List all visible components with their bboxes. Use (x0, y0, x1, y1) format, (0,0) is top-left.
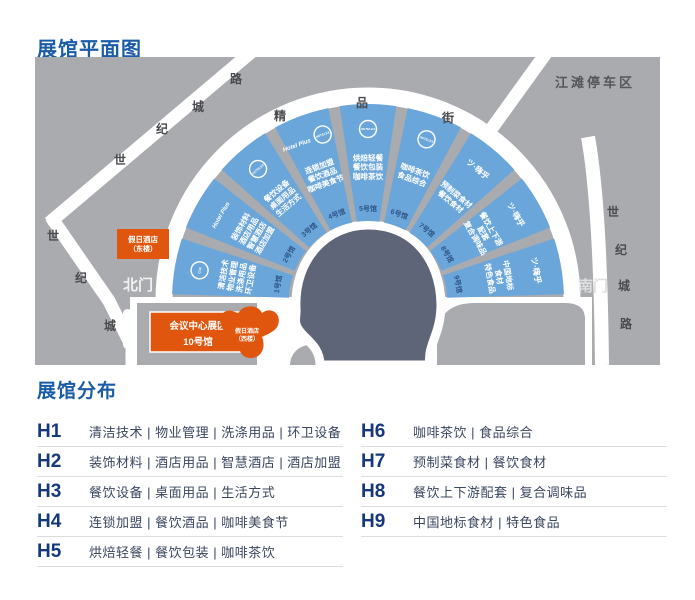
road-label-char: 世 (47, 228, 59, 243)
legend-section: 展馆分布 H1 清洁技术 | 物业管理 | 洗涤用品 | 环卫设备 H2 装饰材… (37, 376, 667, 567)
hotel-east-box (117, 229, 169, 259)
legend-row-h7: H7 预制菜食材 | 餐饮食材 (361, 447, 667, 477)
hotel-east-label: 假日酒店 (128, 234, 158, 244)
southeast-building (437, 303, 585, 365)
hall-logo-text: HOTELEX (361, 127, 377, 131)
hotel-west-sublabel: （西楼） (235, 335, 259, 343)
road-label-char: 纪 (615, 242, 627, 257)
road-label-char: 城 (104, 318, 116, 333)
road-label-char: 城 (192, 99, 204, 114)
hotel-east-sublabel: （东楼） (129, 244, 157, 253)
hall-number: 5号馆 (359, 204, 377, 213)
central-atrium (295, 225, 441, 365)
conference-hall-number: 10号馆 (183, 336, 213, 348)
road-label-char: 世 (114, 152, 126, 167)
conference-hall-label: 会议中心展区 (169, 320, 227, 332)
legend-row-h5: H5 烘焙轻餐 | 餐饮包装 | 咖啡茶饮 (37, 537, 343, 567)
street-label-char: 品 (356, 96, 368, 110)
road-label-char: 路 (230, 71, 243, 86)
hall-categories: 连锁加盟 | 餐饮酒品 | 咖啡美食节 (89, 512, 289, 531)
floor-plan-map: CCE清洁技术物业管理洗涤用品环卫设备1号馆Hotel Plus装饰材料酒店用品… (35, 57, 660, 365)
hall-id: H7 (361, 451, 413, 473)
road-label-char: 路 (620, 316, 633, 331)
road-label-char: 纪 (75, 270, 87, 285)
road-label-char: 世 (607, 204, 619, 219)
legend-row-h8: H8 餐饮上下游配套 | 复合调味品 (361, 477, 667, 507)
parking-area-label: 江滩停车区 (555, 75, 635, 90)
hall-categories: 餐饮设备 | 桌面用品 | 生活方式 (89, 482, 275, 501)
legend-right-column: H6 咖啡茶饮 | 食品综合 H7 预制菜食材 | 餐饮食材 H8 餐饮上下游配… (361, 417, 667, 567)
hall-categories: 装饰材料 | 酒店用品 | 智慧酒店 | 酒店加盟 (89, 452, 341, 471)
hall-id: H3 (37, 481, 89, 503)
legend-row-h6: H6 咖啡茶饮 | 食品综合 (361, 417, 667, 447)
hall-categories: 中国地标食材 | 特色食品 (413, 512, 560, 531)
hotel-east: 假日酒店 （东楼） (117, 229, 169, 259)
hall-id: H9 (361, 511, 413, 533)
hall-id: H6 (361, 421, 413, 443)
street-label-char: 精 (274, 108, 286, 123)
hall-id: H8 (361, 481, 413, 503)
legend-title: 展馆分布 (37, 376, 667, 403)
legend-row-h4: H4 连锁加盟 | 餐饮酒品 | 咖啡美食节 (37, 507, 343, 537)
street-label-char: 街 (441, 110, 454, 125)
legend-row-h9: H9 中国地标食材 | 特色食品 (361, 507, 667, 537)
legend-row-h3: H3 餐饮设备 | 桌面用品 | 生活方式 (37, 477, 343, 507)
hotel-west-label: 假日酒店 (235, 327, 259, 335)
hall-categories: 烘焙轻餐 | 餐饮包装 | 咖啡茶饮 (89, 542, 275, 561)
hall-categories: 预制菜食材 | 餐饮食材 (413, 452, 547, 471)
north-gate-label: 北门 (123, 276, 153, 294)
legend-row-h1: H1 清洁技术 | 物业管理 | 洗涤用品 | 环卫设备 (37, 417, 343, 447)
hall-categories: 清洁技术 | 物业管理 | 洗涤用品 | 环卫设备 (89, 422, 341, 441)
road-label-char: 纪 (156, 121, 168, 136)
road-label-char: 城 (618, 278, 630, 293)
legend-row-h2: H2 装饰材料 | 酒店用品 | 智慧酒店 | 酒店加盟 (37, 447, 343, 477)
hall-id: H4 (37, 511, 89, 533)
legend-left-column: H1 清洁技术 | 物业管理 | 洗涤用品 | 环卫设备 H2 装饰材料 | 酒… (37, 417, 343, 567)
hall-category-lines: 烘焙轻餐餐饮包装咖啡茶饮 (352, 152, 384, 180)
hall-id: H5 (37, 541, 89, 563)
hall-categories: 餐饮上下游配套 | 复合调味品 (413, 482, 587, 501)
hall-categories: 咖啡茶饮 | 食品综合 (413, 422, 533, 441)
hall-id: H1 (37, 421, 89, 443)
gate-lane-marker (123, 309, 132, 349)
hall-id: H2 (37, 451, 89, 473)
south-gate-label: 南门 (578, 277, 608, 295)
